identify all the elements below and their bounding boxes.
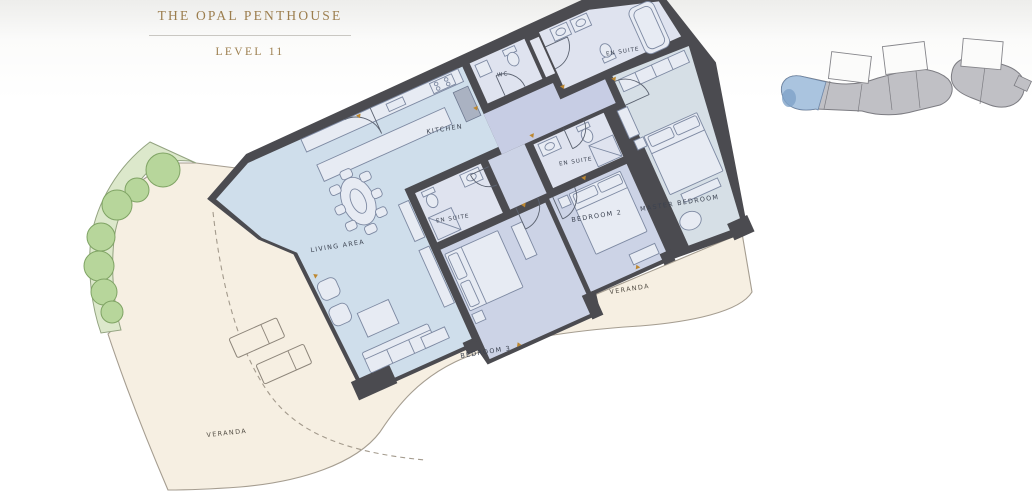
tree-icon [102,190,132,220]
locator-highlight-accent [782,89,796,107]
tree-icon [84,251,114,281]
tree-icon [146,153,180,187]
page-title: THE OPAL PENTHOUSE [145,8,355,24]
site-locator [782,38,1032,114]
locator-roof [961,38,1003,69]
locator-roof [882,42,927,75]
floorplan-page: THE OPAL PENTHOUSE LEVEL 11 [0,0,1032,500]
title-divider [149,35,351,36]
floorplan-canvas: KITCHEN LIVING AREA WC EN SUITE EN SUITE… [0,0,1032,500]
tree-icon [101,301,123,323]
level-label: LEVEL 11 [145,46,355,58]
title-block: THE OPAL PENTHOUSE LEVEL 11 [145,8,355,58]
locator-roof [828,52,871,84]
tree-icon [87,223,115,251]
